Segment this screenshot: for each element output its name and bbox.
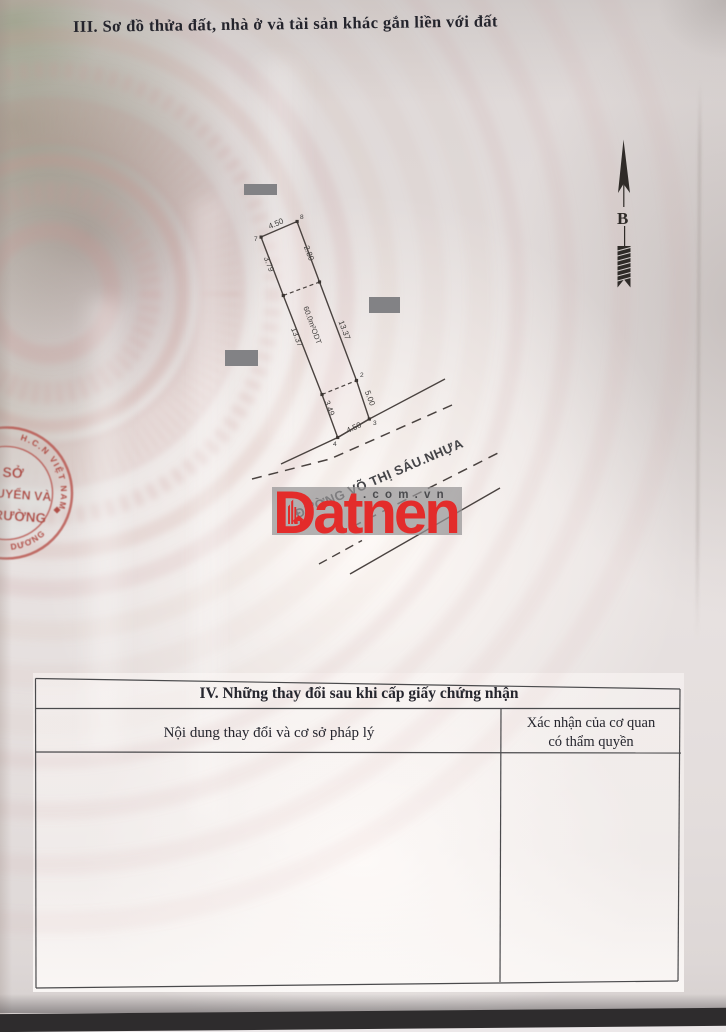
svg-text:B: B [617,209,628,228]
svg-text:2: 2 [360,372,364,379]
svg-text:3: 3 [373,420,377,427]
svg-text:4: 4 [333,441,337,448]
svg-text:7: 7 [254,236,258,243]
svg-text:8: 8 [300,214,304,221]
